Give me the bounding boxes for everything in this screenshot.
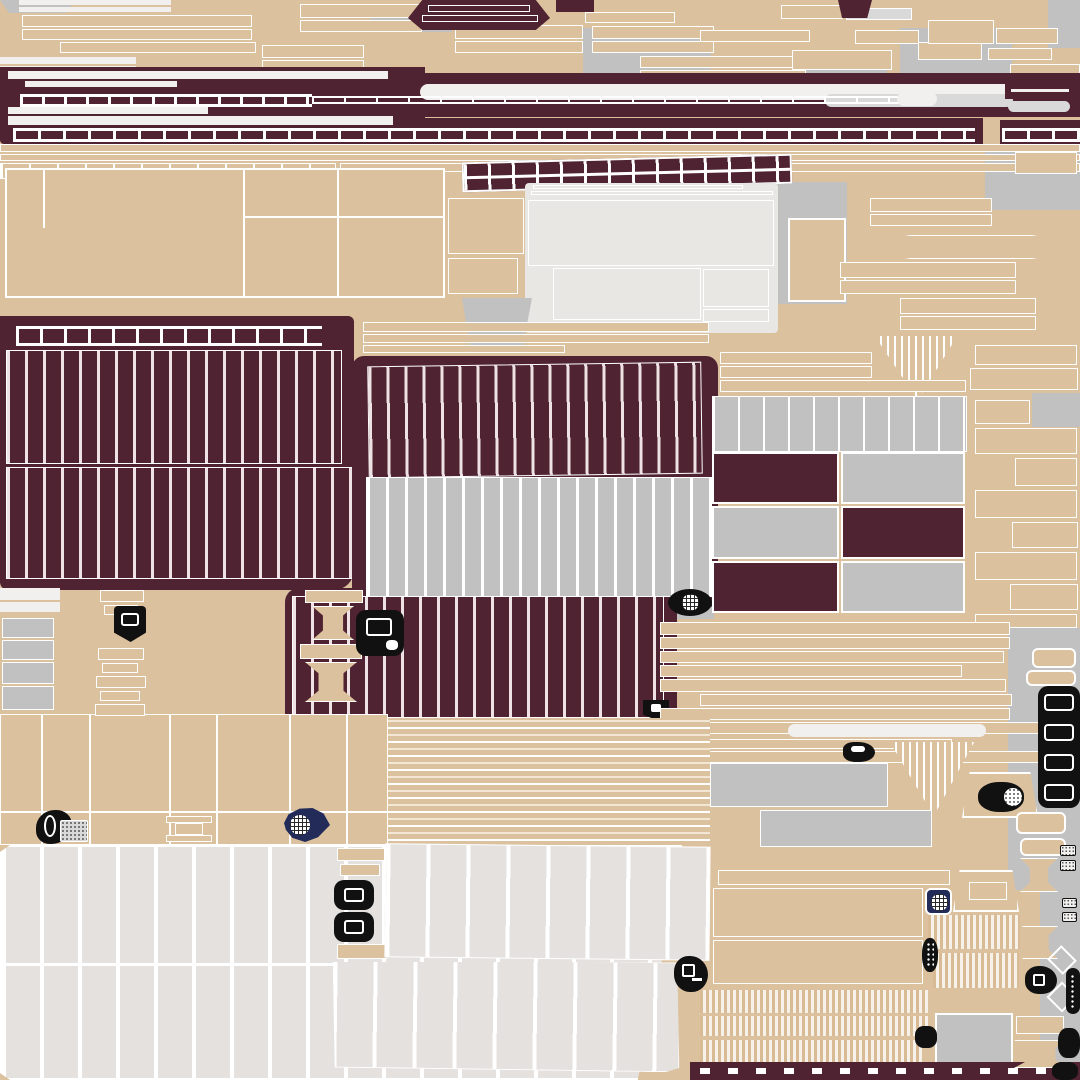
molding-strip bbox=[300, 4, 422, 18]
gray-pill bbox=[1008, 101, 1070, 112]
molding-strip bbox=[870, 214, 992, 226]
molding-strip bbox=[1012, 522, 1078, 548]
seam bbox=[245, 216, 445, 218]
sole-window bbox=[344, 888, 364, 902]
gray-stack-row bbox=[2, 686, 54, 710]
pill bbox=[1044, 694, 1074, 711]
molding-strip bbox=[792, 50, 892, 70]
checker-gray bbox=[841, 452, 965, 504]
molding-strip bbox=[975, 428, 1077, 454]
molding-strip bbox=[918, 42, 982, 60]
molding-strip bbox=[1015, 458, 1077, 486]
awning-maroon bbox=[367, 362, 703, 479]
molding-strip bbox=[640, 56, 806, 68]
maroon-bit bbox=[556, 0, 594, 12]
vent-chip bbox=[1062, 898, 1077, 908]
camera-window bbox=[682, 964, 695, 977]
vent-chip bbox=[1060, 860, 1076, 871]
tag-blob bbox=[386, 640, 398, 650]
tan-panel bbox=[448, 258, 518, 294]
plank-row bbox=[660, 679, 1006, 692]
pedestal-strip bbox=[102, 663, 138, 673]
pedestal-strip bbox=[98, 648, 144, 660]
molding-strip bbox=[592, 26, 714, 39]
white-pill bbox=[788, 724, 986, 737]
frame-trapezoid bbox=[953, 870, 1019, 912]
white-plank bbox=[8, 71, 388, 79]
boot-basket-icon bbox=[36, 810, 90, 844]
plank-row bbox=[363, 345, 565, 353]
plank-row bbox=[363, 322, 709, 332]
white-plank bbox=[0, 57, 136, 64]
seam bbox=[346, 715, 348, 844]
sole-window bbox=[344, 920, 364, 934]
awning-maroon bbox=[6, 467, 356, 579]
awning-maroon bbox=[6, 350, 342, 464]
molding-strip bbox=[262, 45, 364, 58]
white-line bbox=[1011, 89, 1069, 92]
tag-window bbox=[121, 613, 139, 626]
railing bbox=[1002, 128, 1080, 142]
checker-gray bbox=[712, 506, 839, 559]
molding-strip bbox=[60, 42, 256, 53]
molding-strip bbox=[855, 30, 919, 44]
gray-rect bbox=[710, 763, 888, 807]
dash-row bbox=[700, 1068, 1072, 1074]
basket bbox=[60, 820, 88, 842]
molding-strip bbox=[900, 298, 1036, 314]
black-pill-panel bbox=[1038, 686, 1080, 808]
molding-strip bbox=[700, 30, 810, 42]
panel-outline bbox=[553, 268, 701, 320]
spool-strip bbox=[905, 235, 1037, 259]
molding-strip bbox=[996, 28, 1058, 44]
plank-row bbox=[0, 144, 1080, 152]
pedestal-strip bbox=[305, 590, 363, 603]
railing bbox=[13, 128, 975, 142]
plank-row bbox=[700, 694, 1012, 706]
plank-row bbox=[720, 352, 872, 364]
vstripe-block bbox=[700, 1016, 928, 1036]
bell-top bbox=[851, 746, 865, 752]
molding-strip bbox=[718, 870, 950, 885]
panel-outline bbox=[528, 200, 774, 266]
molding-strip bbox=[970, 368, 1078, 390]
white-plank bbox=[19, 0, 171, 5]
white-plank bbox=[8, 116, 393, 125]
light-awning bbox=[384, 843, 710, 960]
big-tan-panel bbox=[5, 168, 445, 298]
railing bbox=[20, 94, 312, 107]
molding-strip bbox=[781, 5, 843, 19]
black-blob bbox=[915, 1026, 937, 1048]
bench-mid bbox=[175, 823, 203, 835]
plank-row bbox=[363, 334, 709, 343]
molding-strip bbox=[1015, 152, 1077, 174]
rail-end-pill bbox=[897, 92, 937, 106]
plank-outline bbox=[422, 15, 538, 22]
plank-row bbox=[660, 665, 962, 677]
molding-strip bbox=[900, 316, 1036, 330]
wheel bbox=[1004, 788, 1022, 806]
seam bbox=[43, 170, 45, 228]
molding-strip bbox=[975, 345, 1077, 365]
molding-strip bbox=[840, 280, 1016, 294]
plank-row bbox=[720, 380, 966, 392]
black-tag-icon bbox=[114, 606, 146, 642]
pedestal-strip bbox=[337, 944, 387, 959]
gray-stack-row bbox=[2, 640, 54, 660]
molding-strip bbox=[22, 29, 252, 40]
striped-triangle bbox=[888, 742, 976, 816]
vstripe-block bbox=[933, 953, 1019, 988]
molding-strip bbox=[585, 12, 675, 23]
gray-patch bbox=[1032, 393, 1080, 427]
maroon-bit bbox=[838, 0, 872, 18]
molding-strip bbox=[22, 15, 252, 27]
pedestal-strip bbox=[337, 848, 385, 861]
tan-panel bbox=[448, 198, 524, 254]
pedestal-strip bbox=[300, 644, 362, 659]
frame-inner bbox=[969, 882, 1007, 900]
meshball-square-icon bbox=[925, 888, 952, 915]
plank-outline bbox=[428, 5, 530, 12]
pill bbox=[1044, 754, 1074, 771]
molding-strip bbox=[975, 400, 1030, 424]
texture-atlas-canvas bbox=[0, 0, 1080, 1080]
panel-outline bbox=[703, 309, 769, 322]
black-dots-column bbox=[1066, 968, 1080, 1014]
black-blob bbox=[1025, 966, 1057, 994]
white-pill-outline bbox=[1026, 670, 1076, 686]
black-blob bbox=[1052, 1062, 1078, 1080]
meshball bbox=[931, 894, 948, 911]
bench-icon bbox=[166, 816, 212, 842]
white-plank bbox=[0, 588, 60, 600]
molding-strip bbox=[300, 20, 422, 32]
hline-band bbox=[388, 718, 710, 846]
checker-maroon bbox=[712, 561, 839, 613]
checker-maroon bbox=[841, 506, 965, 559]
white-plank bbox=[25, 81, 177, 87]
plank-row bbox=[720, 366, 872, 378]
sneaker-icon bbox=[334, 880, 374, 910]
pedestal-strip bbox=[340, 864, 380, 876]
bench-base bbox=[166, 835, 212, 842]
meshball bbox=[680, 592, 701, 613]
plank-row bbox=[660, 651, 1004, 663]
checker-maroon bbox=[712, 452, 839, 504]
light-awning bbox=[331, 958, 681, 1073]
blob-window bbox=[1033, 974, 1045, 986]
bench-top bbox=[166, 816, 212, 823]
gray-stack-row bbox=[2, 662, 54, 684]
tag-window bbox=[366, 618, 392, 636]
molding-strip bbox=[975, 552, 1077, 580]
book-box bbox=[788, 218, 846, 302]
dots bbox=[1070, 974, 1076, 1008]
pedestal-strip bbox=[100, 590, 144, 602]
meshball bbox=[290, 815, 310, 835]
panel-outline bbox=[703, 269, 769, 307]
awning-gray bbox=[366, 477, 712, 597]
tan-box bbox=[713, 940, 923, 984]
maroon-sword bbox=[1005, 83, 1080, 99]
black-tag-icon bbox=[356, 610, 404, 656]
molding-strip bbox=[870, 198, 992, 212]
vent-chip bbox=[1060, 845, 1076, 856]
molding-strip bbox=[928, 20, 994, 44]
vstripe-block bbox=[928, 915, 1020, 949]
grid-panel bbox=[712, 396, 967, 452]
molding-strip bbox=[455, 41, 583, 53]
line-outline bbox=[533, 185, 743, 189]
checker-gray bbox=[841, 561, 965, 613]
meshball-oval-icon bbox=[668, 589, 712, 616]
molding-strip bbox=[840, 262, 1016, 278]
maroon-hat bbox=[408, 0, 550, 30]
gray-box bbox=[935, 1013, 1013, 1065]
line-outline bbox=[531, 191, 773, 195]
maroon-band bbox=[405, 73, 1080, 117]
vent-chip bbox=[1062, 912, 1077, 922]
white-plank bbox=[8, 107, 208, 114]
pedestal-strip bbox=[95, 704, 145, 716]
gray-rect bbox=[760, 810, 932, 847]
railing-thin bbox=[312, 96, 902, 104]
seam bbox=[243, 170, 245, 296]
molding-strip bbox=[975, 490, 1077, 518]
gray-stack-row bbox=[2, 618, 54, 638]
sneaker-icon bbox=[334, 912, 374, 942]
molding-strip bbox=[988, 48, 1052, 60]
molding-strip bbox=[1010, 584, 1078, 610]
vstripe-block bbox=[700, 990, 928, 1013]
speckled-block bbox=[525, 183, 778, 333]
white-plank bbox=[19, 7, 171, 12]
pedestal-strip bbox=[96, 676, 146, 688]
step-strip bbox=[1016, 1016, 1064, 1034]
white-plank bbox=[0, 602, 60, 612]
wheel-blob bbox=[978, 782, 1024, 812]
seam bbox=[216, 715, 218, 844]
camera-strap bbox=[692, 978, 702, 981]
camera-icon bbox=[674, 956, 708, 992]
bell-icon bbox=[843, 742, 875, 762]
white-pill-outline bbox=[1016, 812, 1066, 834]
boot-curve bbox=[44, 815, 56, 837]
dots bbox=[926, 942, 934, 968]
pill bbox=[1044, 784, 1074, 801]
pedestal-strip bbox=[100, 691, 140, 701]
black-dots-blob bbox=[922, 938, 938, 972]
tan-box bbox=[713, 888, 923, 937]
molding-strip bbox=[592, 41, 714, 53]
pill bbox=[1044, 724, 1074, 741]
seam bbox=[337, 170, 339, 296]
plank-row bbox=[660, 637, 1010, 649]
rail-line bbox=[464, 168, 790, 180]
plank-row bbox=[660, 622, 1010, 635]
railing bbox=[16, 326, 322, 346]
black-blob bbox=[1058, 1028, 1080, 1058]
plank-row bbox=[660, 708, 1010, 720]
white-pill-outline bbox=[1032, 648, 1076, 668]
